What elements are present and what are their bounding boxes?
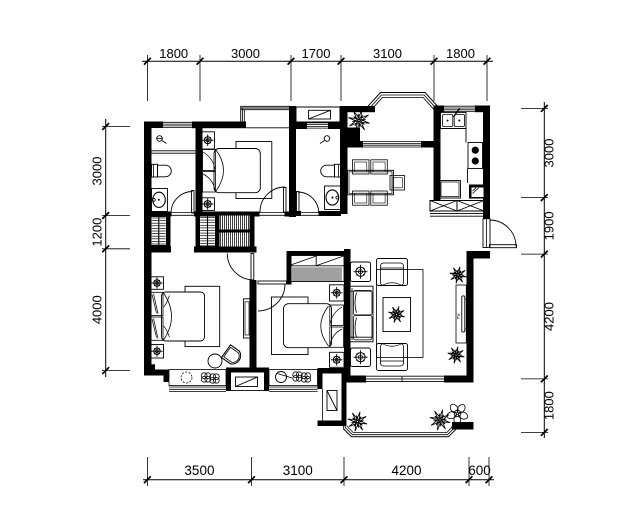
svg-text:3000: 3000 [231,46,260,61]
svg-text:600: 600 [468,463,491,478]
svg-text:3000: 3000 [90,157,105,186]
svg-text:1800: 1800 [159,46,188,61]
svg-text:1800: 1800 [446,46,475,61]
svg-text:1800: 1800 [542,391,557,420]
svg-text:4000: 4000 [90,295,105,324]
svg-text:4200: 4200 [391,463,421,478]
svg-text:3000: 3000 [542,139,557,168]
svg-text:TV: TV [456,314,461,320]
svg-text:3500: 3500 [184,463,214,478]
svg-text:4200: 4200 [542,302,557,331]
svg-text:3100: 3100 [373,46,402,61]
svg-text:1900: 1900 [542,211,557,240]
svg-text:3100: 3100 [283,463,313,478]
svg-text:1700: 1700 [302,46,331,61]
svg-text:1200: 1200 [90,218,105,247]
